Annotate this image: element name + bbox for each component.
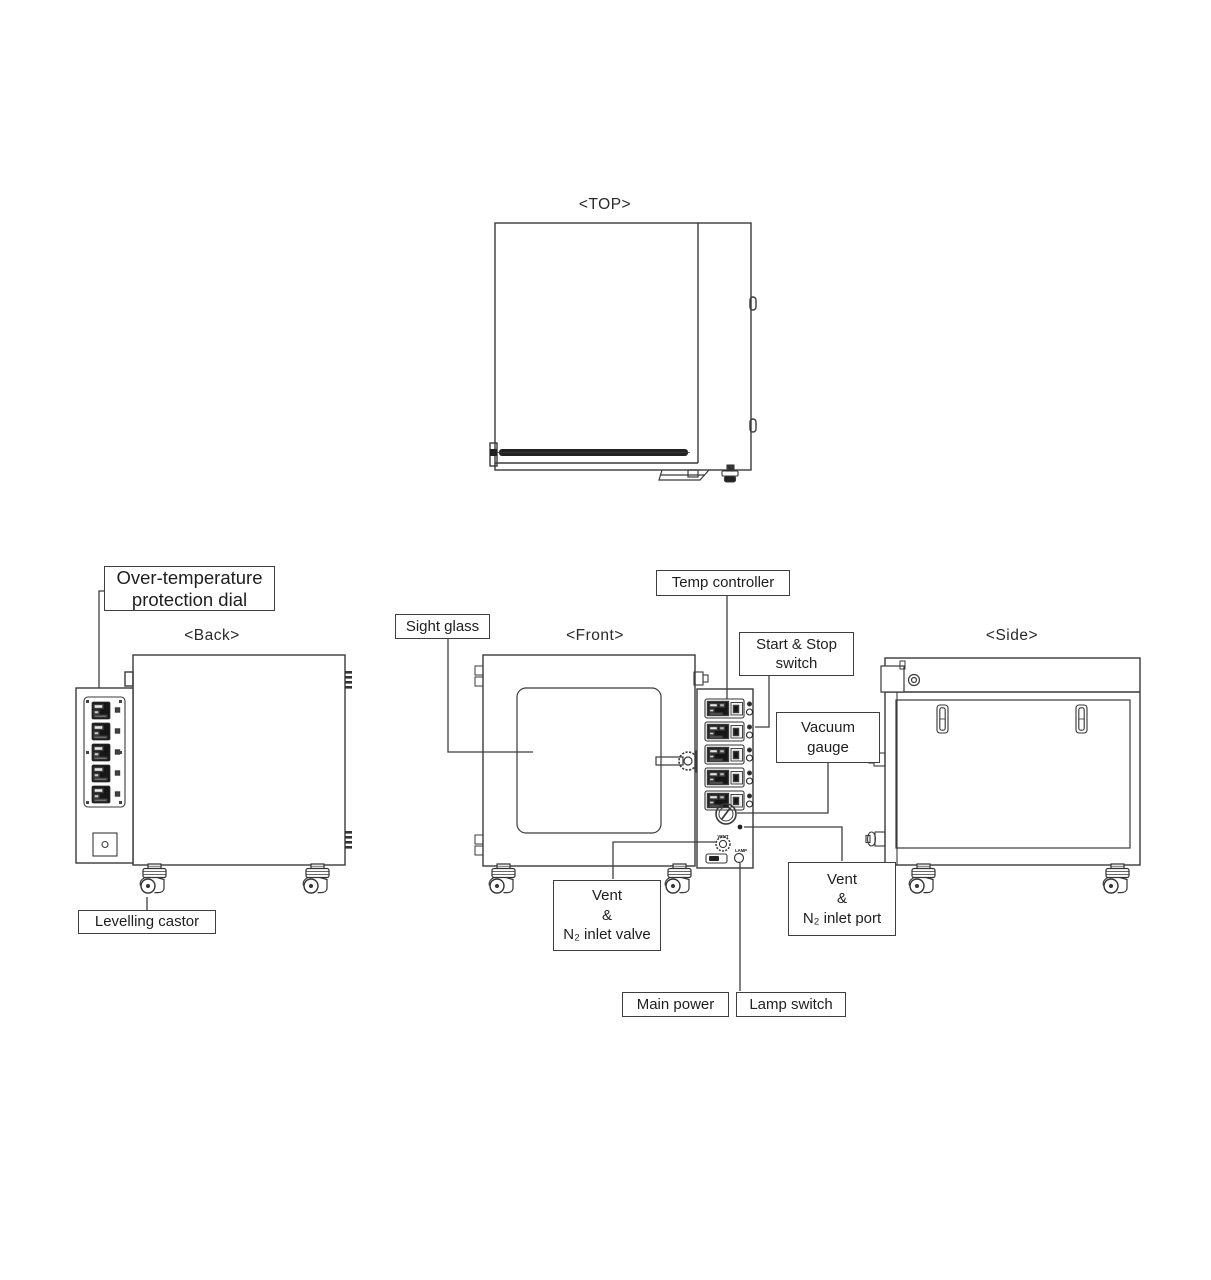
label-line: N₂ inlet port: [803, 909, 881, 929]
label-lamp-switch: Lamp switch: [736, 992, 846, 1017]
castor-icon: [1103, 864, 1129, 893]
back-electrical-panel: [76, 688, 133, 863]
label-line: Lamp switch: [749, 995, 832, 1015]
label-vent-n2-inlet-port: Vent & N₂ inlet port: [788, 862, 896, 936]
panel-handle-slot-icon: [937, 705, 948, 733]
door-latch-top-icon: [659, 470, 709, 480]
oven-diagram-page: VENT LAMP: [0, 0, 1211, 1280]
panel-handle-slot-icon: [1076, 705, 1087, 733]
label-line: Sight glass: [406, 617, 479, 637]
leader-vent-port: [744, 827, 842, 861]
label-line: Start & Stop: [756, 635, 837, 655]
castor-icon: [909, 864, 935, 893]
top-view-title: <TOP>: [545, 196, 665, 214]
back-view: [76, 655, 352, 893]
label-line: gauge: [807, 738, 849, 758]
label-line: N₂ inlet valve: [563, 925, 651, 945]
label-line: Vent: [592, 886, 622, 906]
lamp-caption: LAMP: [735, 848, 747, 853]
door-edge-icon: [881, 666, 904, 692]
side-view: [866, 658, 1140, 893]
front-view-title: <Front>: [545, 627, 645, 645]
label-line: Vent: [827, 870, 857, 890]
top-view: [490, 223, 756, 482]
side-view-title: <Side>: [962, 627, 1062, 645]
label-line: protection dial: [132, 589, 247, 610]
door-hinge-icon: [475, 666, 483, 855]
front-view: VENT LAMP: [475, 655, 753, 893]
label-levelling-castor: Levelling castor: [78, 910, 216, 934]
vent-n2-inlet-port-icon: [866, 832, 885, 846]
label-line: Levelling castor: [95, 912, 199, 932]
castor-icon: [665, 864, 691, 893]
castor-icon: [489, 864, 515, 893]
label-sight-glass: Sight glass: [395, 614, 490, 639]
label-line: &: [837, 889, 847, 909]
label-main-power: Main power: [622, 992, 729, 1017]
label-line: &: [602, 906, 612, 926]
label-line: switch: [776, 654, 818, 674]
hinge-comb-icon: [345, 671, 352, 849]
door-top-catch-icon: [694, 672, 708, 685]
label-line: Temp controller: [672, 573, 775, 593]
label-line: Main power: [637, 995, 715, 1015]
back-view-title: <Back>: [162, 627, 262, 645]
leader-start-stop: [755, 676, 769, 727]
label-over-temperature-protection-dial: Over-temperature protection dial: [104, 566, 275, 611]
castor-icon: [303, 864, 329, 893]
hinge-pin-icon: [125, 672, 133, 686]
label-start-stop-switch: Start & Stop switch: [739, 632, 854, 676]
castor-icon: [140, 864, 166, 893]
label-line: Over-temperature: [117, 567, 263, 588]
label-vacuum-gauge: Vacuum gauge: [776, 712, 880, 763]
label-vent-n2-inlet-valve: Vent & N₂ inlet valve: [553, 880, 661, 951]
label-temp-controller: Temp controller: [656, 570, 790, 596]
front-control-panel: VENT LAMP: [697, 689, 753, 868]
vacuum-gauge-icon: [716, 804, 736, 824]
vent-port-icon: [738, 825, 743, 830]
label-line: Vacuum: [801, 718, 855, 738]
